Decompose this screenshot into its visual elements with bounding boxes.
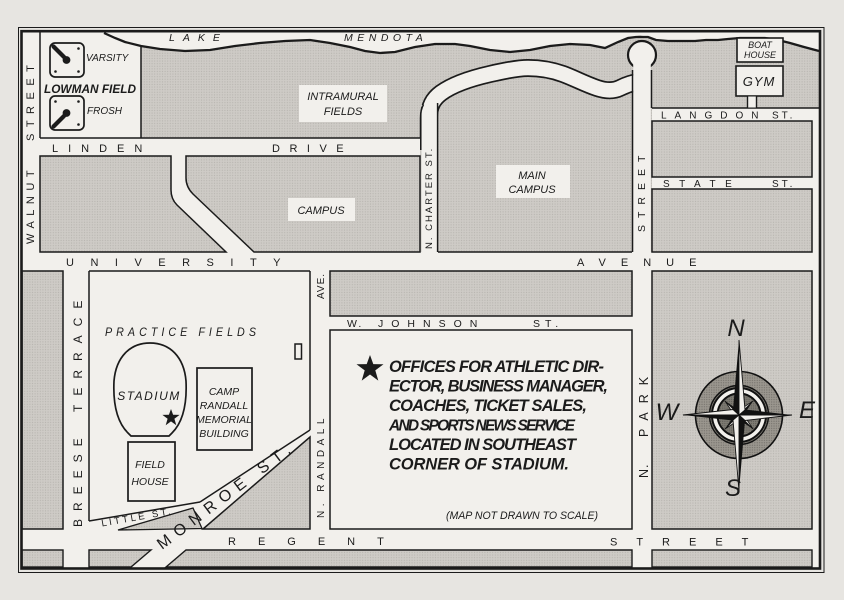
svg-text:LAKE: LAKE <box>169 32 228 44</box>
svg-text:CORNER OF STADIUM.: CORNER OF STADIUM. <box>389 456 569 474</box>
svg-text:STATE: STATE <box>663 179 741 190</box>
svg-text:INTRAMURAL: INTRAMURAL <box>307 91 379 103</box>
svg-text:MEMORIAL: MEMORIAL <box>196 414 252 426</box>
svg-text:ST.: ST. <box>772 111 795 122</box>
svg-text:STREET: STREET <box>636 149 648 232</box>
svg-text:PARK: PARK <box>637 368 651 437</box>
svg-text:AVE.: AVE. <box>316 273 327 299</box>
svg-text:ST.: ST. <box>772 179 795 190</box>
svg-text:PRACTICE FIELDS: PRACTICE FIELDS <box>105 325 260 339</box>
svg-text:AND SPORTS NEWS SERVICE: AND SPORTS NEWS SERVICE <box>388 418 576 435</box>
svg-text:MAIN: MAIN <box>518 170 546 182</box>
svg-text:VARSITY: VARSITY <box>86 53 130 64</box>
svg-text:FIELDS: FIELDS <box>324 106 363 118</box>
svg-text:DRIVE: DRIVE <box>272 143 353 155</box>
svg-text:ECTOR, BUSINESS MANAGER,: ECTOR, BUSINESS MANAGER, <box>389 378 608 396</box>
svg-text:N.: N. <box>637 464 651 479</box>
svg-text:N. RANDALL: N. RANDALL <box>316 414 327 518</box>
svg-text:HOUSE: HOUSE <box>744 50 777 60</box>
svg-text:COACHES, TICKET SALES,: COACHES, TICKET SALES, <box>389 397 587 415</box>
svg-text:(MAP NOT DRAWN TO SCALE): (MAP NOT DRAWN TO SCALE) <box>446 510 598 522</box>
svg-text:BUILDING: BUILDING <box>199 428 249 440</box>
svg-text:JOHNSON: JOHNSON <box>378 318 485 330</box>
svg-text:HOUSE: HOUSE <box>131 476 169 488</box>
svg-text:FROSH: FROSH <box>87 106 123 117</box>
svg-text:STREET: STREET <box>610 537 767 549</box>
svg-text:CAMP: CAMP <box>209 386 239 398</box>
svg-text:WALNUT: WALNUT <box>25 165 37 244</box>
svg-text:STREET: STREET <box>25 59 37 141</box>
svg-text:REGENT: REGENT <box>228 536 406 548</box>
svg-text:FIELD: FIELD <box>135 459 165 471</box>
svg-text:W.: W. <box>347 318 363 330</box>
svg-text:N: N <box>727 315 745 342</box>
svg-text:W: W <box>656 399 681 426</box>
svg-text:N. CHARTER ST.: N. CHARTER ST. <box>424 147 435 249</box>
svg-text:ST.: ST. <box>533 318 563 330</box>
svg-text:LANGDON: LANGDON <box>661 111 766 122</box>
svg-text:TERRACE: TERRACE <box>71 292 85 412</box>
svg-text:BOAT: BOAT <box>748 40 773 50</box>
svg-text:GYM: GYM <box>743 74 776 89</box>
svg-text:LOWMAN FIELD: LOWMAN FIELD <box>44 84 136 96</box>
svg-text:LOCATED IN SOUTHEAST: LOCATED IN SOUTHEAST <box>389 436 578 454</box>
svg-text:MENDOTA: MENDOTA <box>344 32 427 44</box>
svg-text:E: E <box>799 397 816 424</box>
svg-text:CAMPUS: CAMPUS <box>508 184 556 196</box>
svg-text:STADIUM: STADIUM <box>117 389 181 403</box>
svg-text:RANDALL: RANDALL <box>200 400 249 412</box>
svg-text:BREESE: BREESE <box>71 430 85 527</box>
svg-text:CAMPUS: CAMPUS <box>297 205 345 217</box>
svg-text:S: S <box>725 475 741 502</box>
svg-text:AVENUE: AVENUE <box>577 257 711 269</box>
svg-text:LINDEN: LINDEN <box>52 143 152 155</box>
svg-text:OFFICES FOR ATHLETIC DIR-: OFFICES FOR ATHLETIC DIR- <box>389 358 605 376</box>
svg-text:UNIVERSITY: UNIVERSITY <box>66 257 297 269</box>
